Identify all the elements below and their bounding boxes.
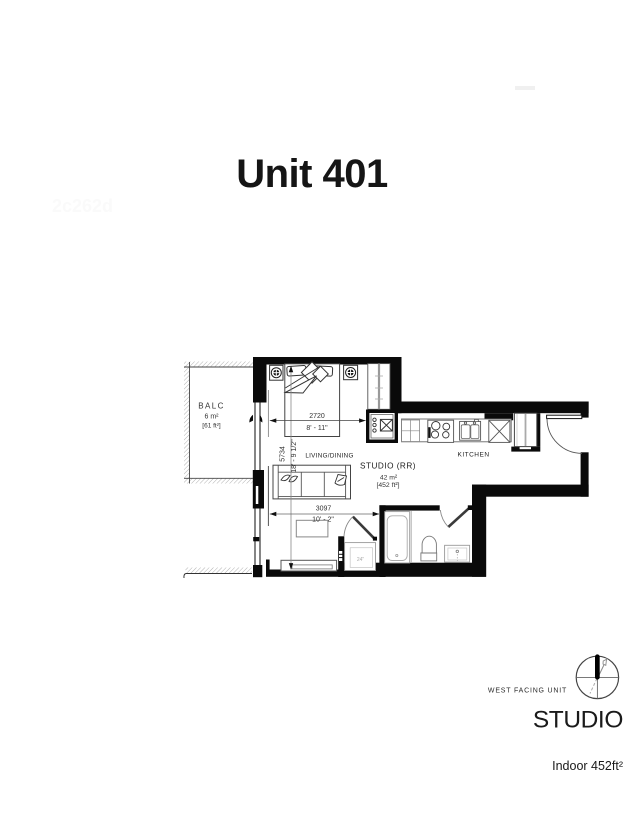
svg-text:5734: 5734 (279, 446, 286, 462)
svg-text:STUDIO (RR): STUDIO (RR) (360, 462, 416, 471)
svg-text:Indoor 452ft²: Indoor 452ft² (552, 759, 623, 773)
svg-text:6 m²: 6 m² (205, 414, 220, 421)
svg-text:3097: 3097 (316, 506, 332, 513)
svg-text:8' - 11": 8' - 11" (306, 425, 328, 432)
svg-text:10' - 2": 10' - 2" (312, 517, 334, 524)
svg-text:[452 ft²]: [452 ft²] (376, 482, 399, 489)
svg-text:BALC: BALC (198, 402, 225, 411)
svg-text:2c262d: 2c262d (52, 196, 113, 216)
svg-text:[61 ft²]: [61 ft²] (202, 423, 221, 430)
svg-text:24": 24" (357, 557, 365, 563)
svg-text:WEST FACING UNIT: WEST FACING UNIT (488, 688, 567, 695)
svg-text:STUDIO: STUDIO (533, 707, 623, 734)
svg-text:KITCHEN: KITCHEN (457, 452, 489, 459)
svg-text:2720: 2720 (309, 413, 325, 420)
svg-text:LIVING/DINING: LIVING/DINING (305, 453, 353, 460)
svg-text:42 m²: 42 m² (380, 475, 398, 482)
svg-text:18' - 9 1/2": 18' - 9 1/2" (291, 439, 298, 473)
svg-text:Unit 401: Unit 401 (236, 152, 388, 196)
